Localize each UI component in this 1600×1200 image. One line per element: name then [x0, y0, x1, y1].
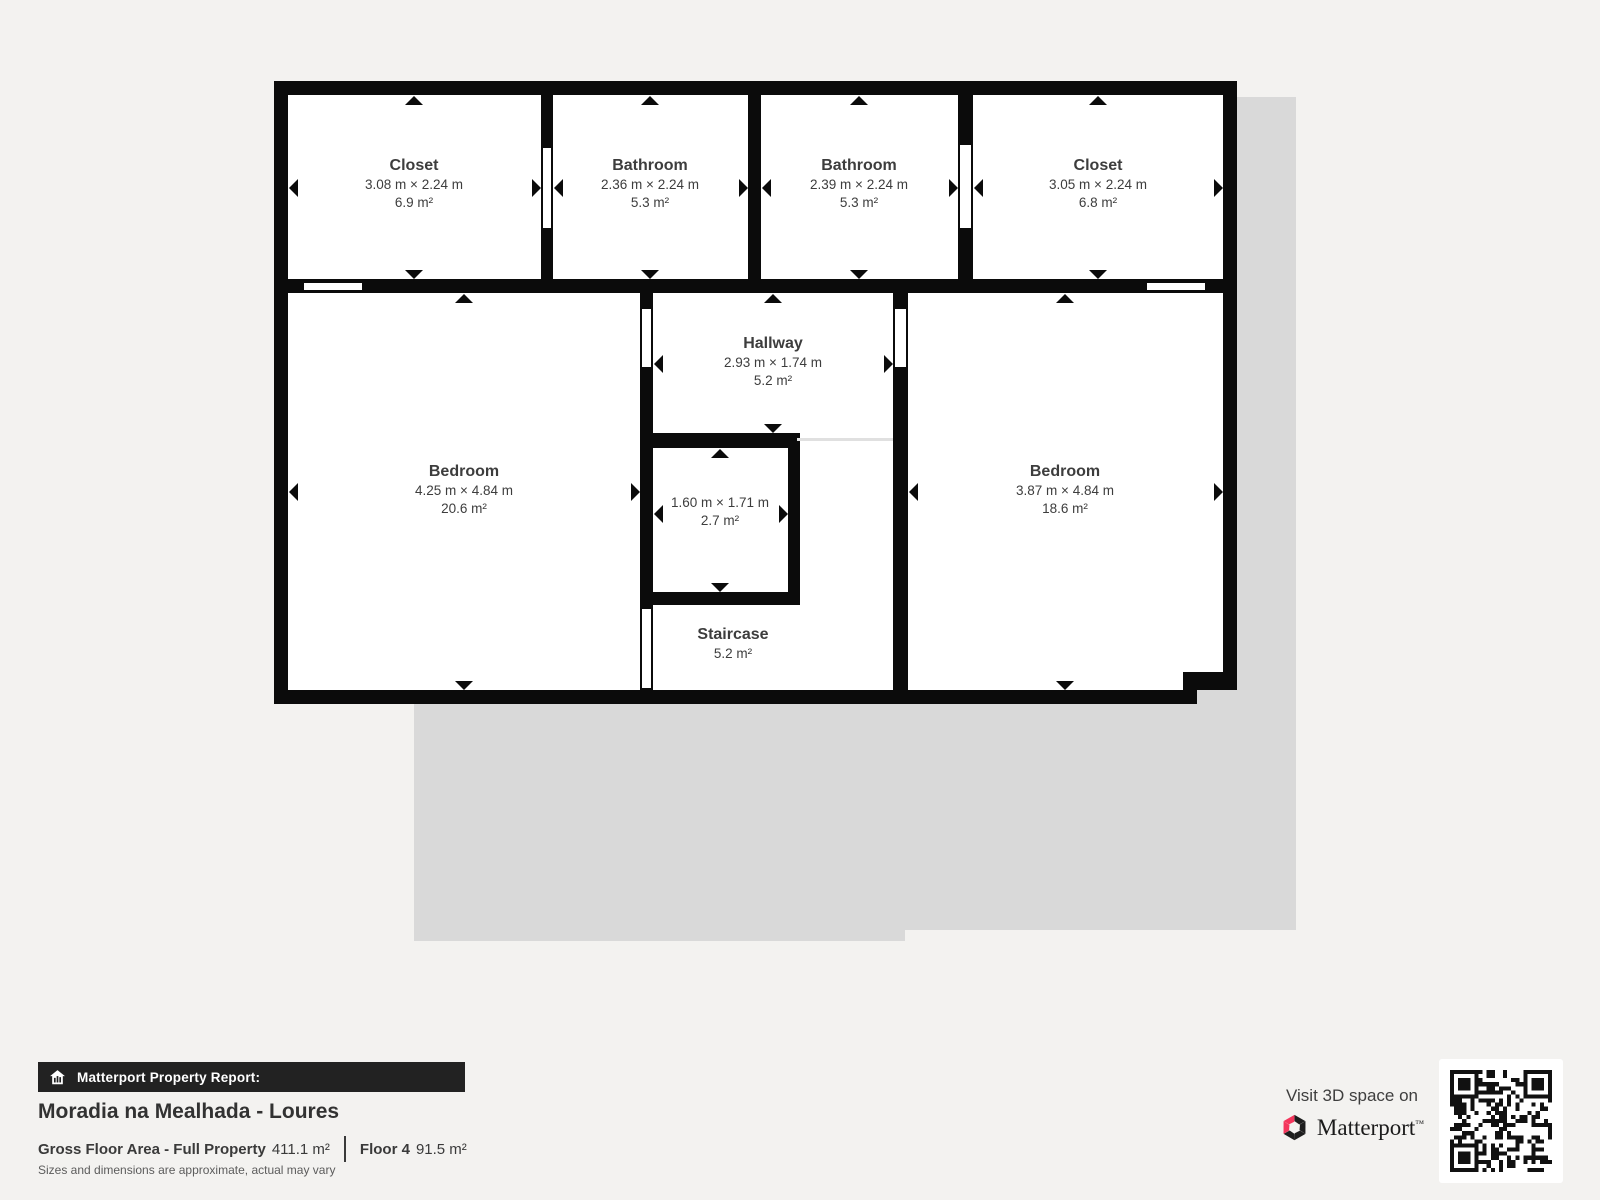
wall-bottom	[274, 690, 1197, 704]
dim-arrow-down	[850, 270, 868, 279]
dim-arrow-down	[1056, 681, 1074, 690]
dim-arrow-up	[850, 96, 868, 105]
dim-arrow-right	[779, 505, 788, 523]
gross-floor-area-value: 411.1 m²	[272, 1141, 330, 1158]
matterport-logo: Matterport™	[1280, 1113, 1424, 1142]
dim-arrow-up	[1089, 96, 1107, 105]
report-banner: Matterport Property Report:	[38, 1062, 465, 1092]
dim-arrow-right	[739, 179, 748, 197]
floor-stats: Gross Floor Area - Full Property 411.1 m…	[38, 1136, 467, 1162]
visit-3d-text: Visit 3D space on	[1286, 1086, 1418, 1106]
dim-arrow-down	[641, 270, 659, 279]
floor-shadow-bottom-left	[414, 700, 905, 941]
room-closet-2	[973, 95, 1223, 279]
dim-arrow-right	[1214, 483, 1223, 501]
dim-arrow-up	[711, 449, 729, 458]
dim-arrow-left	[654, 355, 663, 373]
room-hallway	[653, 293, 893, 433]
door-closet1-bathroom1	[541, 146, 553, 230]
dim-arrow-up	[405, 96, 423, 105]
room-bedroom-left	[288, 293, 640, 690]
room-bathroom-1	[553, 95, 748, 279]
disclaimer-text: Sizes and dimensions are approximate, ac…	[38, 1163, 335, 1177]
stats-divider	[344, 1136, 346, 1162]
dim-arrow-left	[762, 179, 771, 197]
visit-3d-block: Visit 3D space on Matterport™	[1252, 1086, 1452, 1142]
door-hallway-bedroom-left	[640, 307, 653, 369]
dim-arrow-right	[532, 179, 541, 197]
room-shaft	[653, 448, 788, 592]
dim-arrow-right	[884, 355, 893, 373]
dim-arrow-left	[974, 179, 983, 197]
dim-arrow-down	[1089, 270, 1107, 279]
dim-arrow-left	[289, 483, 298, 501]
dim-arrow-up	[641, 96, 659, 105]
area-divider-line	[797, 438, 893, 441]
dim-arrow-down	[405, 270, 423, 279]
dim-arrow-up	[1056, 294, 1074, 303]
room-bedroom-right	[908, 293, 1223, 690]
dim-arrow-right	[1214, 179, 1223, 197]
dim-arrow-right	[631, 483, 640, 501]
property-title: Moradia na Mealhada - Loures	[38, 1100, 339, 1124]
door-closet2-bedroom	[1145, 281, 1207, 292]
door-bathroom2-closet2	[958, 143, 973, 230]
door-closet1-bedroom	[302, 281, 364, 292]
house-report-icon	[49, 1069, 66, 1086]
floor-area-value: 91.5 m²	[416, 1141, 467, 1158]
dim-arrow-left	[654, 505, 663, 523]
floor-shadow-right	[1237, 97, 1296, 930]
door-staircase-bedroom-left	[640, 607, 653, 690]
trademark-symbol: ™	[1415, 1118, 1424, 1128]
qr-code	[1439, 1059, 1563, 1183]
wall-notch	[1183, 672, 1237, 690]
dim-arrow-up	[764, 294, 782, 303]
matterport-pinwheel-icon	[1280, 1113, 1309, 1142]
room-closet-1	[288, 95, 541, 279]
dim-arrow-right	[949, 179, 958, 197]
dim-arrow-down	[711, 583, 729, 592]
dim-arrow-left	[289, 179, 298, 197]
dim-arrow-up	[455, 294, 473, 303]
dim-arrow-down	[764, 424, 782, 433]
room-staircase-lower	[653, 605, 893, 690]
report-banner-label: Matterport Property Report:	[77, 1070, 260, 1085]
dim-arrow-left	[554, 179, 563, 197]
floor-label: Floor 4	[360, 1141, 410, 1158]
room-bathroom-2	[761, 95, 958, 279]
gross-floor-area-label: Gross Floor Area - Full Property	[38, 1141, 266, 1158]
dim-arrow-down	[455, 681, 473, 690]
dim-arrow-left	[909, 483, 918, 501]
door-hallway-bedroom-right	[893, 307, 908, 369]
matterport-wordmark: Matterport™	[1317, 1115, 1424, 1141]
